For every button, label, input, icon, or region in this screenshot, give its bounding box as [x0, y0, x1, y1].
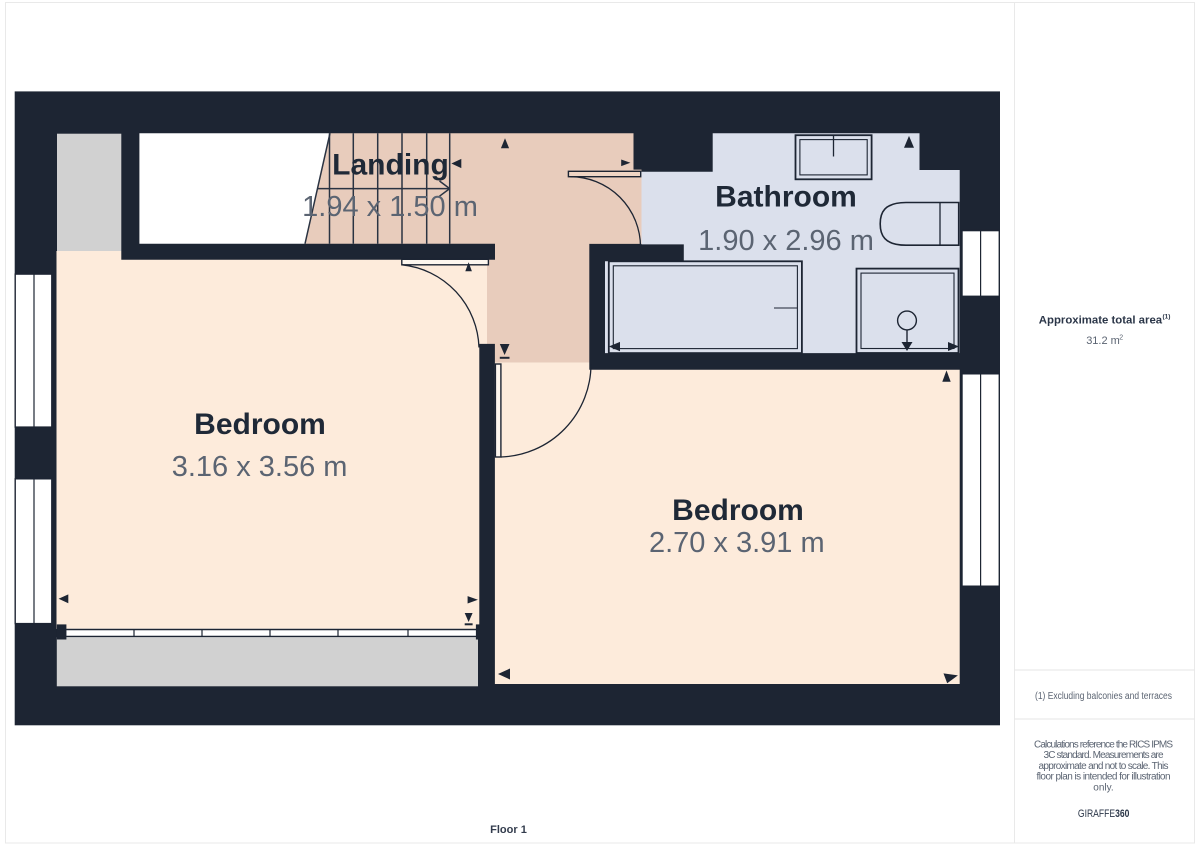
- svg-text:Bedroom: Bedroom: [672, 494, 804, 527]
- svg-text:only.: only.: [1093, 782, 1113, 793]
- svg-text:3.16 x 3.56 m: 3.16 x 3.56 m: [172, 451, 348, 483]
- svg-text:2: 2: [1119, 335, 1123, 342]
- svg-text:floor plan is intended for ill: floor plan is intended for illustration: [1037, 772, 1171, 783]
- svg-text:(1): (1): [1163, 314, 1171, 321]
- svg-text:Landing: Landing: [332, 149, 449, 182]
- svg-text:1.94 x 1.50 m: 1.94 x 1.50 m: [302, 191, 478, 223]
- svg-text:(1) Excluding balconies and te: (1) Excluding balconies and terraces: [1035, 691, 1172, 702]
- svg-text:2.70 x 3.91 m: 2.70 x 3.91 m: [649, 527, 825, 559]
- svg-text:31.2 m: 31.2 m: [1086, 335, 1120, 347]
- svg-text:approximate and not to scale.: approximate and not to scale. This: [1039, 761, 1169, 772]
- svg-text:Calculations reference the RIC: Calculations reference the RICS IPMS: [1034, 740, 1173, 751]
- svg-text:Floor 1: Floor 1: [490, 824, 527, 836]
- svg-text:GIRAFFE360: GIRAFFE360: [1078, 808, 1130, 820]
- svg-text:1.90 x 2.96 m: 1.90 x 2.96 m: [698, 225, 874, 257]
- svg-text:Approximate total area: Approximate total area: [1039, 315, 1163, 327]
- svg-text:Bathroom: Bathroom: [715, 181, 857, 214]
- svg-text:3C standard. Measurements are: 3C standard. Measurements are: [1044, 750, 1164, 761]
- svg-text:Bedroom: Bedroom: [194, 408, 326, 441]
